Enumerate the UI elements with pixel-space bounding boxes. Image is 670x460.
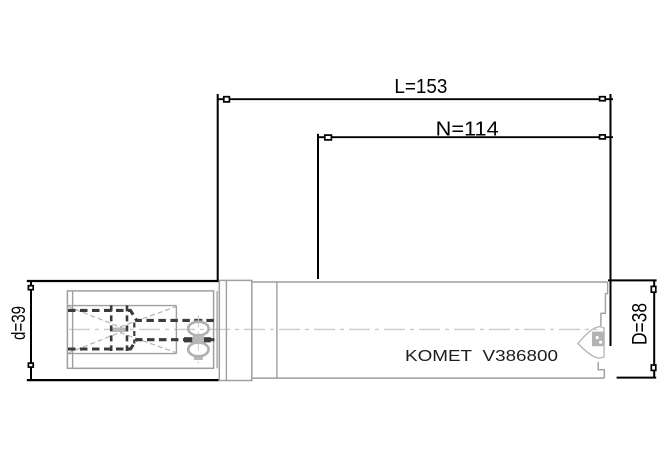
svg-text:KOMET V386800: KOMET V386800 xyxy=(405,348,558,365)
svg-text:L=153: L=153 xyxy=(394,76,447,98)
svg-text:d=39: d=39 xyxy=(9,306,30,340)
svg-text:N=114: N=114 xyxy=(436,118,499,140)
svg-text:D=38: D=38 xyxy=(628,303,651,345)
